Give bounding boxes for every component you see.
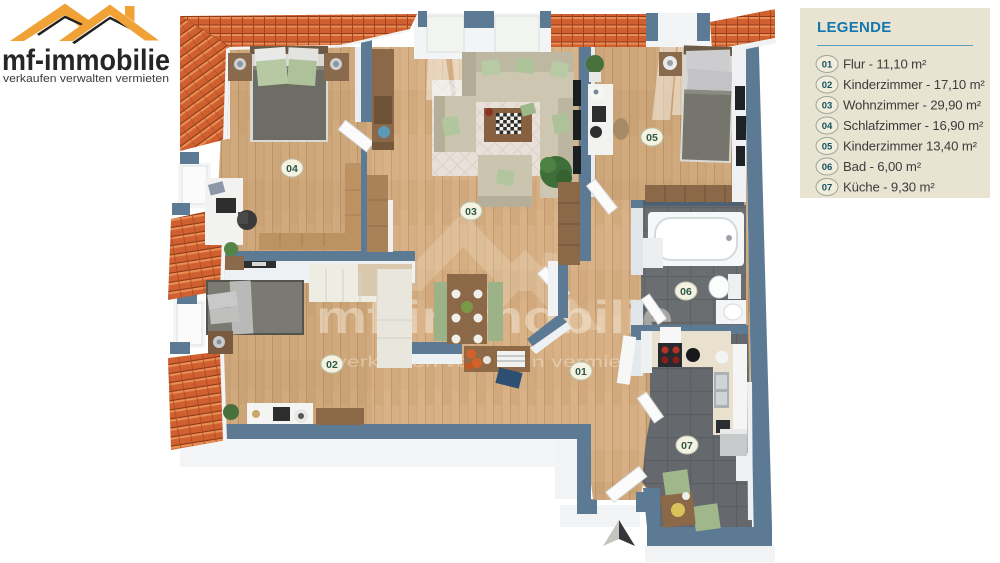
svg-text:04: 04 (286, 163, 298, 175)
svg-text:01: 01 (575, 366, 587, 378)
svg-text:Schlafzimmer - 16,90 m²: Schlafzimmer - 16,90 m² (843, 118, 984, 133)
svg-text:Flur - 11,10 m²: Flur - 11,10 m² (843, 57, 927, 72)
svg-text:Kinderzimmer 13,40 m²: Kinderzimmer 13,40 m² (843, 139, 978, 154)
svg-text:Kinderzimmer - 17,10 m²: Kinderzimmer - 17,10 m² (843, 77, 985, 92)
svg-text:03: 03 (465, 206, 477, 218)
svg-text:05: 05 (822, 142, 833, 153)
svg-text:verkaufen verwalten vermieten: verkaufen verwalten vermieten (3, 73, 169, 85)
svg-text:02: 02 (326, 359, 338, 371)
svg-text:02: 02 (822, 80, 833, 91)
svg-text:06: 06 (680, 286, 692, 298)
svg-text:04: 04 (822, 121, 833, 132)
svg-text:01: 01 (822, 60, 833, 71)
svg-text:03: 03 (822, 101, 833, 112)
svg-text:06: 06 (822, 162, 833, 173)
svg-text:Küche - 9,30 m²: Küche - 9,30 m² (843, 180, 935, 195)
svg-text:Bad - 6,00 m²: Bad - 6,00 m² (843, 159, 922, 174)
svg-text:07: 07 (681, 440, 693, 452)
svg-text:07: 07 (822, 183, 833, 194)
svg-text:05: 05 (646, 132, 658, 144)
svg-text:Wohnzimmer - 29,90 m²: Wohnzimmer - 29,90 m² (843, 98, 982, 113)
